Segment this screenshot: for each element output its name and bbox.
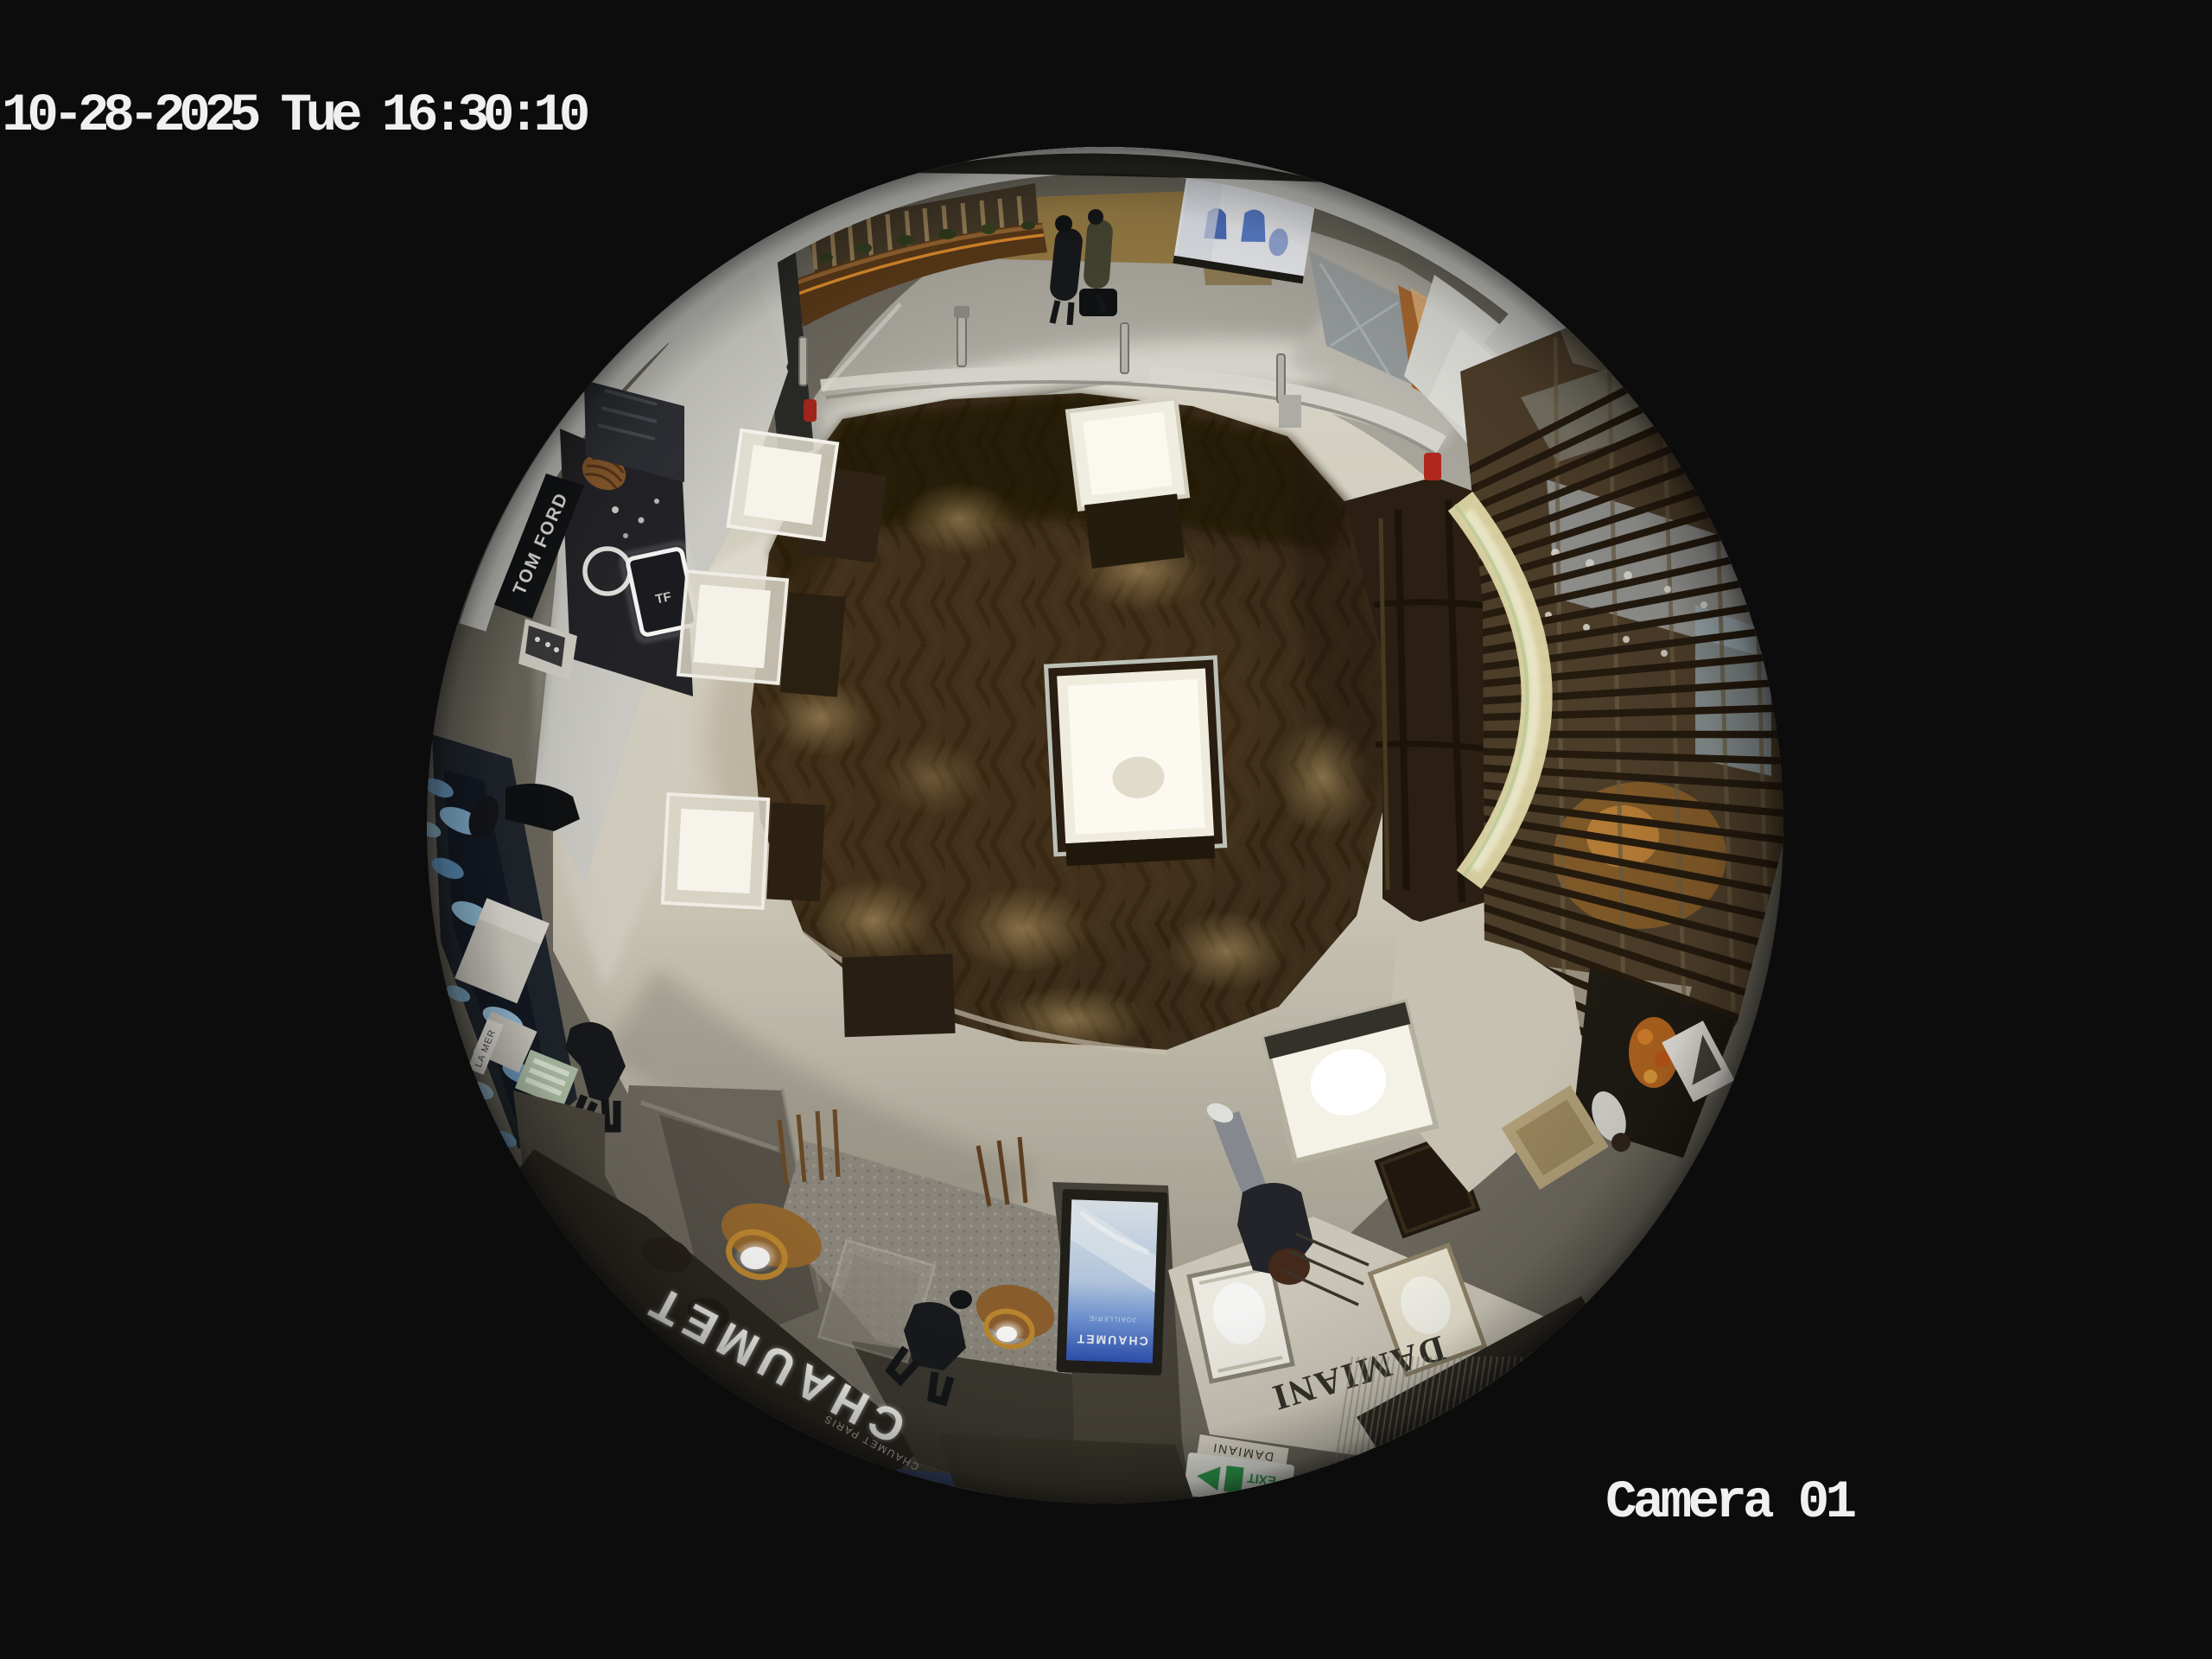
svg-text:10-28-2025 Tue 16:30:10: 10-28-2025 Tue 16:30:10 <box>2 86 588 146</box>
svg-text:Camera 01: Camera 01 <box>1605 1473 1855 1533</box>
